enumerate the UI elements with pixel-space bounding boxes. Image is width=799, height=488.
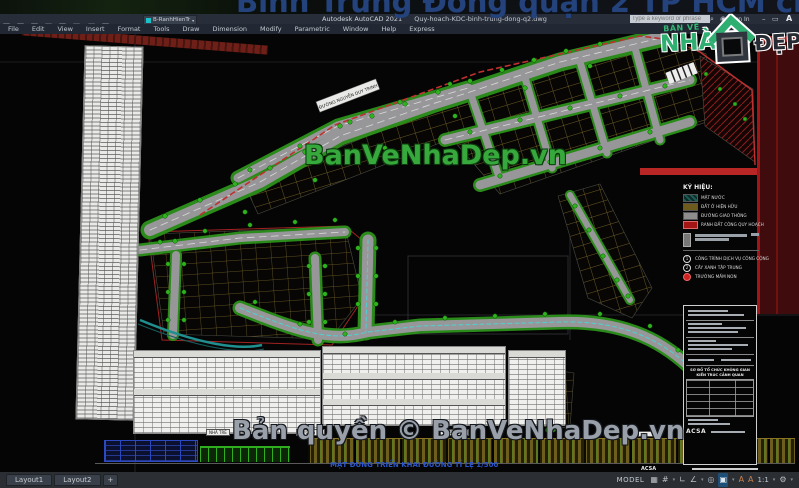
model-space-label[interactable]: MODEL bbox=[617, 476, 645, 484]
road-label-box: ĐƯỜNG NGUYỄN DUY TRINH bbox=[316, 79, 380, 112]
legend-extra-row bbox=[683, 233, 759, 247]
menu-insert[interactable]: Insert bbox=[86, 25, 105, 33]
tab-layout2[interactable]: Layout2 bbox=[54, 474, 100, 486]
menu-file[interactable]: File bbox=[8, 25, 19, 33]
title-block: SƠ ĐỒ TỔ CHỨC KHÔNG GIAN KIẾN TRÚC CẢNH … bbox=[683, 305, 757, 465]
titleblock-logo: ACSA bbox=[686, 428, 706, 435]
status-bar: Layout1 Layout2 + MODEL ▦ # ▾ ∟ ∠ ▾ ◎ ▣ … bbox=[0, 472, 799, 488]
statistics-table-2 bbox=[322, 346, 506, 426]
tab-add-layout[interactable]: + bbox=[103, 474, 119, 486]
legend-symbol-public: 1 CÔNG TRÌNH DỊCH VỤ CÔNG CỘNG bbox=[683, 254, 759, 263]
menu-view[interactable]: View bbox=[57, 25, 72, 33]
legend-item-road: ĐƯỜNG GIAO THÔNG bbox=[683, 211, 759, 220]
road-swatch bbox=[683, 212, 698, 220]
circle-2-icon: 2 bbox=[683, 264, 691, 272]
snap-icon[interactable]: # bbox=[662, 473, 669, 487]
logo-text-suffix: ĐẸP bbox=[754, 29, 799, 55]
chevron-down-icon[interactable]: ▾ bbox=[701, 477, 704, 483]
annotation-visibility-icon[interactable]: A bbox=[739, 473, 744, 487]
elevation-green-building bbox=[200, 446, 290, 462]
autocad-window: Bình Trưng Đông quận 2 TP HCM chi tiết B… bbox=[0, 0, 799, 488]
titleblock-table bbox=[686, 379, 754, 417]
annotation-scale-icon[interactable]: A bbox=[748, 473, 753, 487]
legend-symbol-green: 2 CÂY XANH TẬP TRUNG bbox=[683, 263, 759, 272]
elevation-label-nha-tre: NHÀ TRẺ bbox=[206, 429, 230, 436]
chevron-down-icon[interactable]: ▾ bbox=[732, 477, 735, 483]
polar-icon[interactable]: ∠ bbox=[690, 473, 697, 487]
titleblock-scheme-title: SƠ ĐỒ TỔ CHỨC KHÔNG GIAN KIẾN TRÚC CẢNH … bbox=[686, 368, 754, 377]
menu-draw[interactable]: Draw bbox=[183, 25, 200, 33]
elevation-caption: MẶT ĐỨNG TRIỂN KHAI ĐƯỜNG TỈ LỆ 1/500 bbox=[330, 461, 498, 469]
watermark-bottom: Bản quyền © BanVeNhaDep.vn bbox=[232, 416, 684, 446]
gear-icon[interactable]: ⚙ bbox=[779, 473, 786, 487]
water-swatch bbox=[683, 194, 698, 202]
residential-swatch bbox=[683, 203, 698, 211]
elevation-blue-houses bbox=[104, 440, 198, 462]
layer-dropdown-value: B-RanhHienTr bbox=[153, 17, 190, 23]
banvenhadep-logo: BẢN VẼ NHÀ ĐẸP bbox=[659, 9, 796, 74]
menu-modify[interactable]: Modify bbox=[260, 25, 282, 33]
chevron-down-icon[interactable]: ▾ bbox=[673, 477, 676, 483]
sheet-footer-bar bbox=[692, 468, 758, 470]
chevron-down-icon[interactable]: ▾ bbox=[790, 477, 793, 483]
legend-panel: KÝ HIỆU: MẶT NƯỚC ĐẤT Ở HIỆN HỮU ĐƯỜNG G… bbox=[683, 184, 759, 281]
legend-item-boundary: RANH ĐẤT CÔNG QUY HOẠCH bbox=[683, 220, 759, 229]
statistics-table-3 bbox=[508, 350, 566, 426]
menu-tools[interactable]: Tools bbox=[153, 25, 169, 33]
filled-circle-icon bbox=[683, 273, 691, 281]
legend-item-residential: ĐẤT Ở HIỆN HỮU bbox=[683, 202, 759, 211]
autocad-canvas[interactable]: ĐƯỜNG NGUYỄN DUY TRINH NHÀ TRẺ ĐƯỜNG D1 … bbox=[0, 34, 799, 472]
menu-format[interactable]: Format bbox=[118, 25, 141, 33]
grid-icon[interactable]: ▦ bbox=[650, 473, 658, 487]
isodraft-icon[interactable]: ▣ bbox=[718, 473, 728, 487]
watermark-center: BanVeNhaDep.vn bbox=[304, 140, 567, 171]
menu-edit[interactable]: Edit bbox=[32, 25, 45, 33]
menu-help[interactable]: Help bbox=[381, 25, 396, 33]
menu-window[interactable]: Window bbox=[343, 25, 369, 33]
legend-extra-swatch bbox=[683, 233, 691, 247]
ortho-icon[interactable]: ∟ bbox=[679, 473, 686, 487]
house-icon bbox=[705, 12, 760, 65]
tab-layout1[interactable]: Layout1 bbox=[6, 474, 52, 486]
boundary-swatch bbox=[683, 221, 698, 229]
menu-express[interactable]: Express bbox=[409, 25, 434, 33]
menu-parametric[interactable]: Parametric bbox=[295, 25, 330, 33]
legend-title: KÝ HIỆU: bbox=[683, 184, 759, 191]
legend-symbol-school: TRƯỜNG MẦM NON bbox=[683, 272, 759, 281]
osnap-icon[interactable]: ◎ bbox=[708, 473, 715, 487]
layer-color-swatch bbox=[146, 18, 151, 23]
circle-1-icon: 1 bbox=[683, 255, 691, 263]
status-toggles: MODEL ▦ # ▾ ∟ ∠ ▾ ◎ ▣ ▾ A A 1:1 ▾ ⚙ ▾ bbox=[617, 473, 799, 487]
legend-item-water: MẶT NƯỚC bbox=[683, 193, 759, 202]
chevron-down-icon: ▾ bbox=[192, 18, 194, 23]
chevron-down-icon[interactable]: ▾ bbox=[773, 477, 776, 483]
annotation-scale-value[interactable]: 1:1 bbox=[758, 476, 769, 484]
menu-dimension[interactable]: Dimension bbox=[212, 25, 247, 33]
